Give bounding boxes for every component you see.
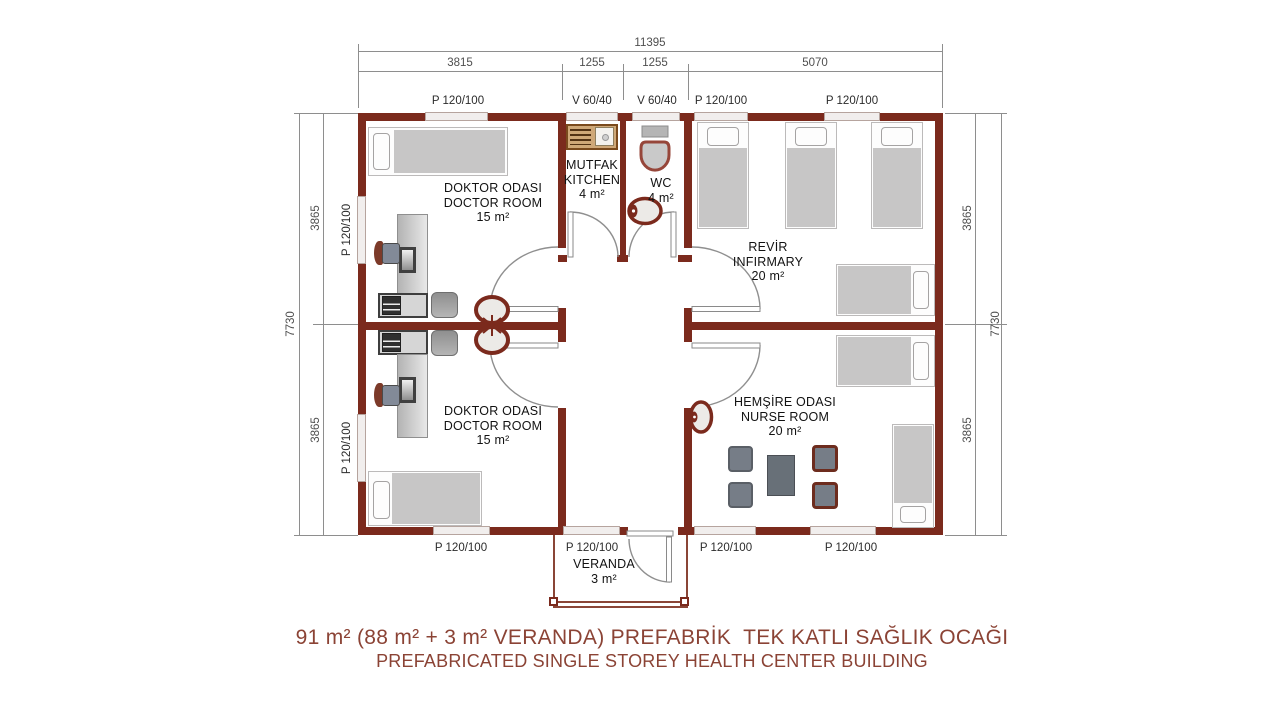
- room-nurse-area: 20 m²: [700, 424, 870, 439]
- room-nurse-subtitle: NURSE ROOM: [700, 410, 870, 425]
- room-nurse-title: HEMŞİRE ODASI: [700, 395, 870, 410]
- room-doctor-bottom-subtitle: DOCTOR ROOM: [413, 419, 573, 434]
- room-wc-title: WC: [628, 176, 694, 191]
- room-kitchen-subtitle: KITCHEN: [558, 173, 626, 188]
- floor-plan-canvas: 11395 3815 1255 1255 5070 P 120/100 V 60…: [0, 0, 1280, 720]
- room-label-kitchen: MUTFAK KITCHEN 4 m²: [558, 158, 626, 202]
- room-wc-area: 4 m²: [628, 191, 694, 206]
- room-kitchen-area: 4 m²: [558, 187, 626, 202]
- room-veranda-area: 3 m²: [554, 572, 654, 587]
- room-infirmary-area: 20 m²: [698, 269, 838, 284]
- room-doctor-bottom-area: 15 m²: [413, 433, 573, 448]
- door-kitchen: [568, 212, 618, 257]
- room-infirmary-title: REVİR: [698, 240, 838, 255]
- room-label-infirmary: REVİR INFIRMARY 20 m²: [698, 240, 838, 284]
- room-label-doctor-bottom: DOKTOR ODASI DOCTOR ROOM 15 m²: [413, 404, 573, 448]
- room-infirmary-subtitle: INFIRMARY: [698, 255, 838, 270]
- room-doctor-top-subtitle: DOCTOR ROOM: [413, 196, 573, 211]
- room-veranda-title: VERANDA: [554, 557, 654, 572]
- room-label-doctor-top: DOKTOR ODASI DOCTOR ROOM 15 m²: [413, 181, 573, 225]
- washbasin-double-doctor: [476, 297, 508, 353]
- room-doctor-top-title: DOKTOR ODASI: [413, 181, 573, 196]
- plan-title-turkish: 91 m² (88 m² + 3 m² VERANDA) PREFABRİK T…: [12, 626, 1280, 650]
- toilet: [641, 126, 669, 170]
- room-doctor-bottom-title: DOKTOR ODASI: [413, 404, 573, 419]
- room-doctor-top-area: 15 m²: [413, 210, 573, 225]
- plan-title-english: PREFABRICATED SINGLE STOREY HEALTH CENTE…: [12, 651, 1280, 672]
- room-kitchen-title: MUTFAK: [558, 158, 626, 173]
- room-label-nurse: HEMŞİRE ODASI NURSE ROOM 20 m²: [700, 395, 870, 439]
- doors-fixtures-layer: [0, 0, 1280, 720]
- room-label-wc: WC 4 m²: [628, 176, 694, 205]
- room-label-veranda: VERANDA 3 m²: [554, 557, 654, 586]
